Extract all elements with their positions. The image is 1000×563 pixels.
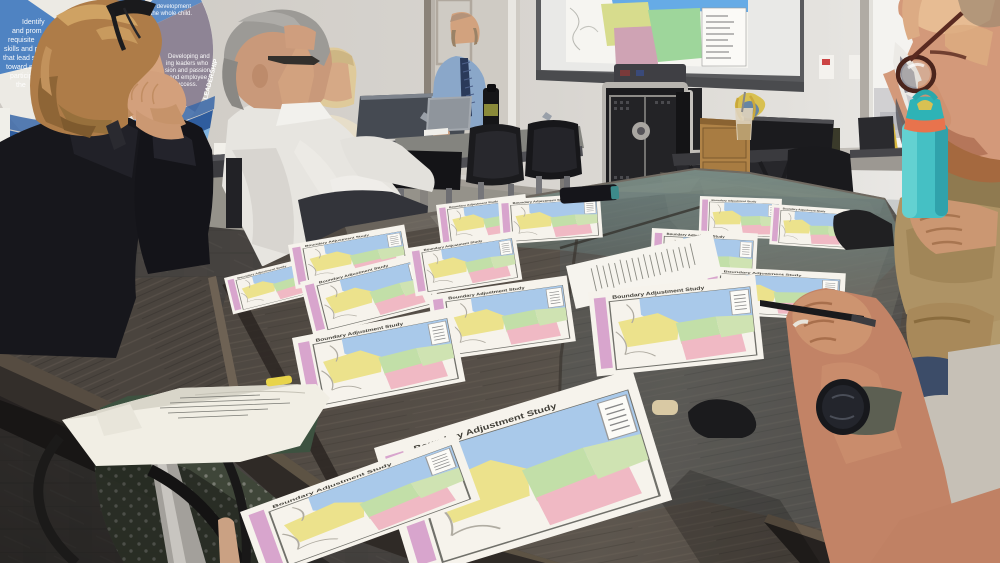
svg-text:and prom: and prom xyxy=(12,28,42,35)
svg-text:Developing and: Developing and xyxy=(168,54,210,60)
svg-text:ing leaders who: ing leaders who xyxy=(166,61,209,67)
svg-text:requisite: requisite xyxy=(8,37,35,44)
svg-text:that lead s: that lead s xyxy=(3,55,36,62)
svg-text:sion and passion: sion and passion xyxy=(165,68,210,74)
svg-text:Identify: Identify xyxy=(22,19,45,26)
svg-text:the: the xyxy=(16,82,26,89)
